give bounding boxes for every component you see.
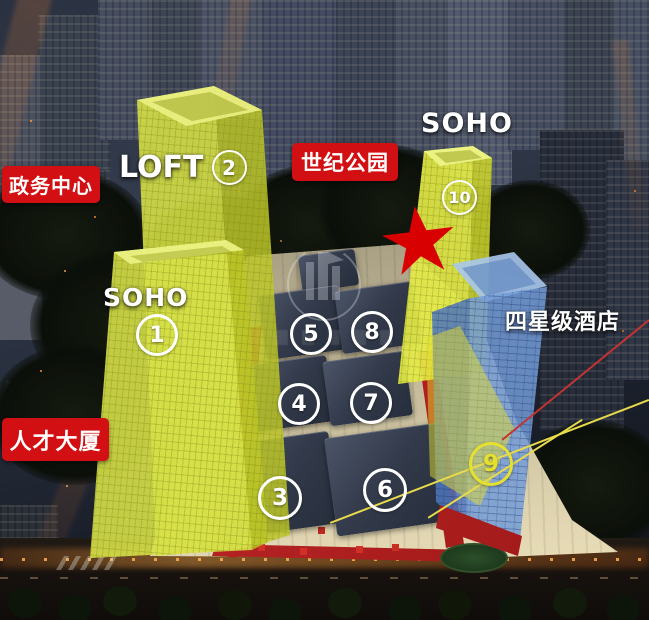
marker-10-num: 10 [448,188,470,207]
marker-4-num: 4 [291,392,306,417]
marker-7: 7 [350,382,392,424]
label-talent-tower: 人才大厦 [2,418,109,461]
masterplan-rendering: 1 5 8 4 7 3 6 9 10 LOFT 2 SOHO SOHO 四星级酒… [0,0,649,620]
street-lights-dots [30,120,32,122]
marker-9-num: 9 [483,451,499,477]
marker-6: 6 [363,468,407,512]
crosswalk [56,556,124,570]
marker-4: 4 [278,383,320,425]
loft-label-group: LOFT 2 [119,150,247,185]
label-gov-center-text: 政务中心 [9,170,93,199]
marker-8: 8 [351,311,393,353]
label-talent-tower-text: 人才大厦 [9,424,101,456]
soho-upper-label: SOHO [421,108,513,139]
marker-3-num: 3 [272,485,288,511]
marker-3: 3 [258,476,302,520]
marker-1-num: 1 [149,323,164,348]
marker-9: 9 [469,442,513,486]
label-century-park-text: 世纪公园 [301,147,389,177]
bottom-tree [8,588,42,618]
background-building [508,0,570,150]
soho-lower-label: SOHO [103,283,188,312]
marker-5-num: 5 [303,322,318,347]
background-building [152,0,204,100]
marker-8-num: 8 [364,320,379,345]
marker-10: 10 [442,180,477,215]
loft-label: LOFT [119,150,204,185]
marker-7-num: 7 [363,391,378,416]
label-gov-center: 政务中心 [2,166,100,203]
marker-2-num: 2 [222,156,236,180]
marker-5: 5 [290,313,332,355]
car-lights-row [0,577,649,579]
hotel-label: 四星级酒店 [505,304,620,336]
marker-2: 2 [212,150,247,185]
marker-6-num: 6 [377,477,393,503]
label-century-park: 世纪公园 [292,143,398,181]
marker-1: 1 [136,314,178,356]
watermark-logo-icon [278,242,370,326]
